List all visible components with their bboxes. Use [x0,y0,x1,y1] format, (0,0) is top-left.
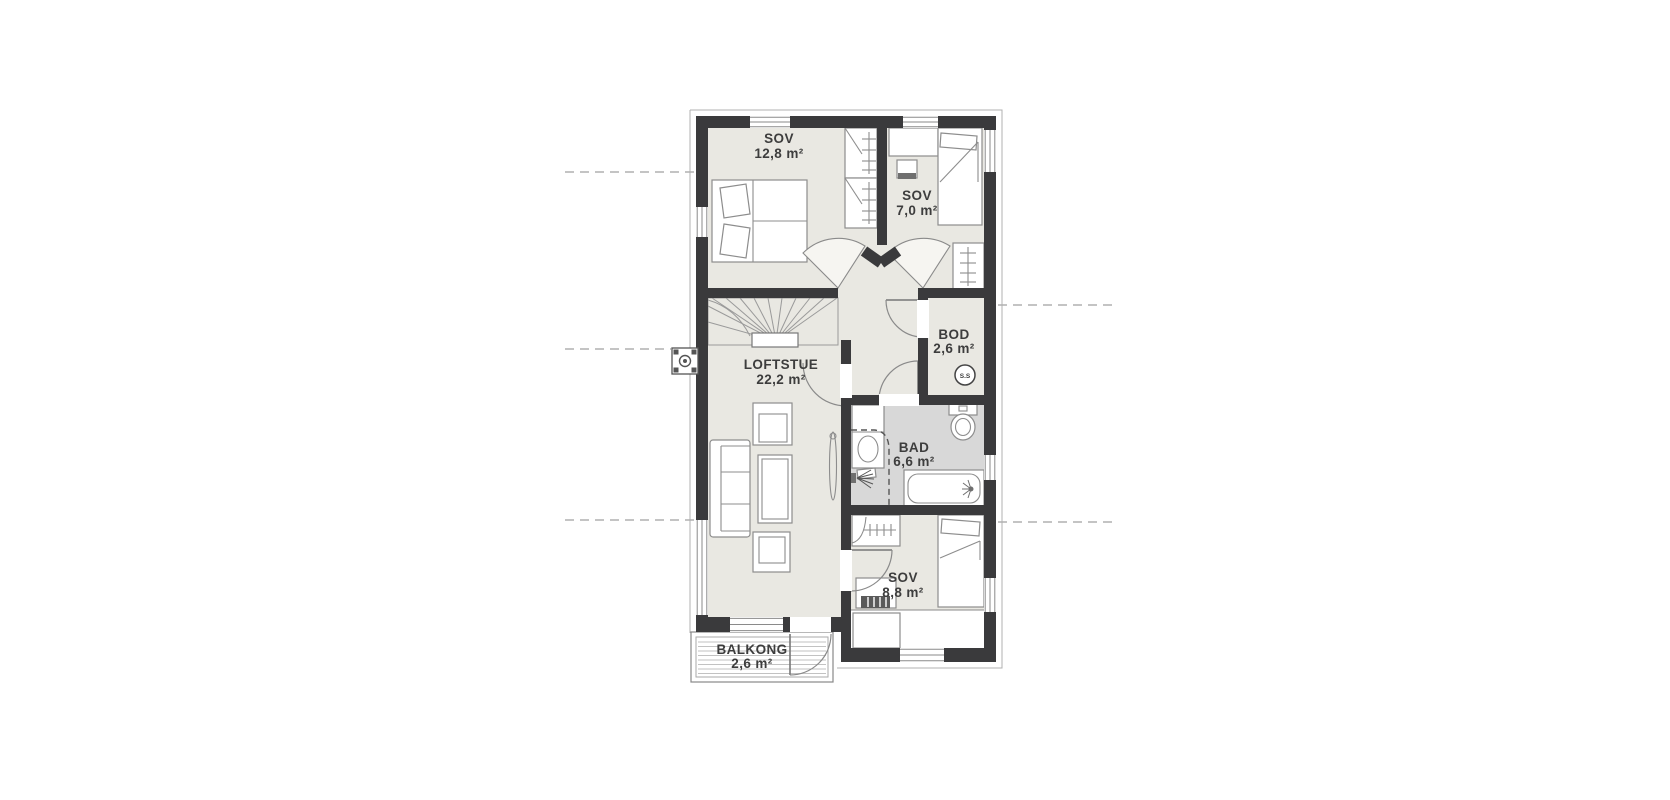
label-sov2-area: 7,0 m² [896,203,938,218]
wall-sov3-left-lower [841,591,851,648]
desk-sov2 [889,128,938,156]
toilet [949,404,977,440]
window-left-loftstue [696,520,708,615]
wall-bad-left [841,399,851,517]
label-loftstue-area: 22,2 m² [756,372,805,387]
wall-top [696,116,996,128]
double-bed [712,180,807,262]
bathtub [904,470,984,507]
wall-bad-bottom [841,505,996,515]
window-right-sov3 [984,578,996,612]
window-bottom-sov3 [900,648,944,662]
hall-wardrobe [953,243,984,290]
label-bod-name: BOD [938,327,969,342]
chimney-icon [672,348,698,374]
chair-sov2 [897,160,917,179]
vanity-sink [852,405,884,479]
window-left-sov1 [696,207,708,237]
label-bad-area: 6,6 m² [893,454,935,469]
label-balkong-area: 2,6 m² [731,656,773,671]
single-bed-sov3 [938,515,984,607]
ss-badge-label: S.S [960,373,971,380]
label-bad-name: BAD [899,440,929,455]
window-bottom-loftstue [730,617,783,632]
window-top-sov1 [750,116,790,128]
armchair-south [753,532,790,572]
label-sov3-name: SOV [888,570,918,585]
label-sov1-area: 12,8 m² [754,146,803,161]
wardrobe-3 [852,515,900,546]
wardrobe-1 [845,128,877,178]
label-loftstue-name: LOFTSTUE [744,357,818,372]
single-bed-sov2 [938,128,982,225]
desk-sov3 [853,613,900,648]
window-right-sov2 [984,130,996,172]
wall-bedroom-divider [877,116,887,245]
ss-badge: S.S [955,365,975,385]
label-sov3-area: 8,8 m² [882,585,924,600]
label-balkong-name: BALKONG [716,642,787,657]
coffee-table [758,455,792,523]
wall-hall-chunk [841,340,851,364]
sofa [710,440,750,537]
wall-bod-top [918,288,996,298]
wall-stairs-top [696,288,838,298]
wardrobe-2 [845,178,877,228]
label-sov1-name: SOV [764,131,794,146]
stair-landing [752,333,798,347]
label-bod-area: 2,6 m² [933,341,975,356]
window-right-bad [984,455,996,480]
floor-plan: S.S SOV 12,8 m² SOV 7,0 m² BOD 2,6 m² LO… [0,0,1670,800]
label-sov2-name: SOV [902,188,932,203]
window-top-sov2 [903,116,938,128]
armchair-north [753,403,792,445]
wall-sov3-left-upper [841,515,851,550]
